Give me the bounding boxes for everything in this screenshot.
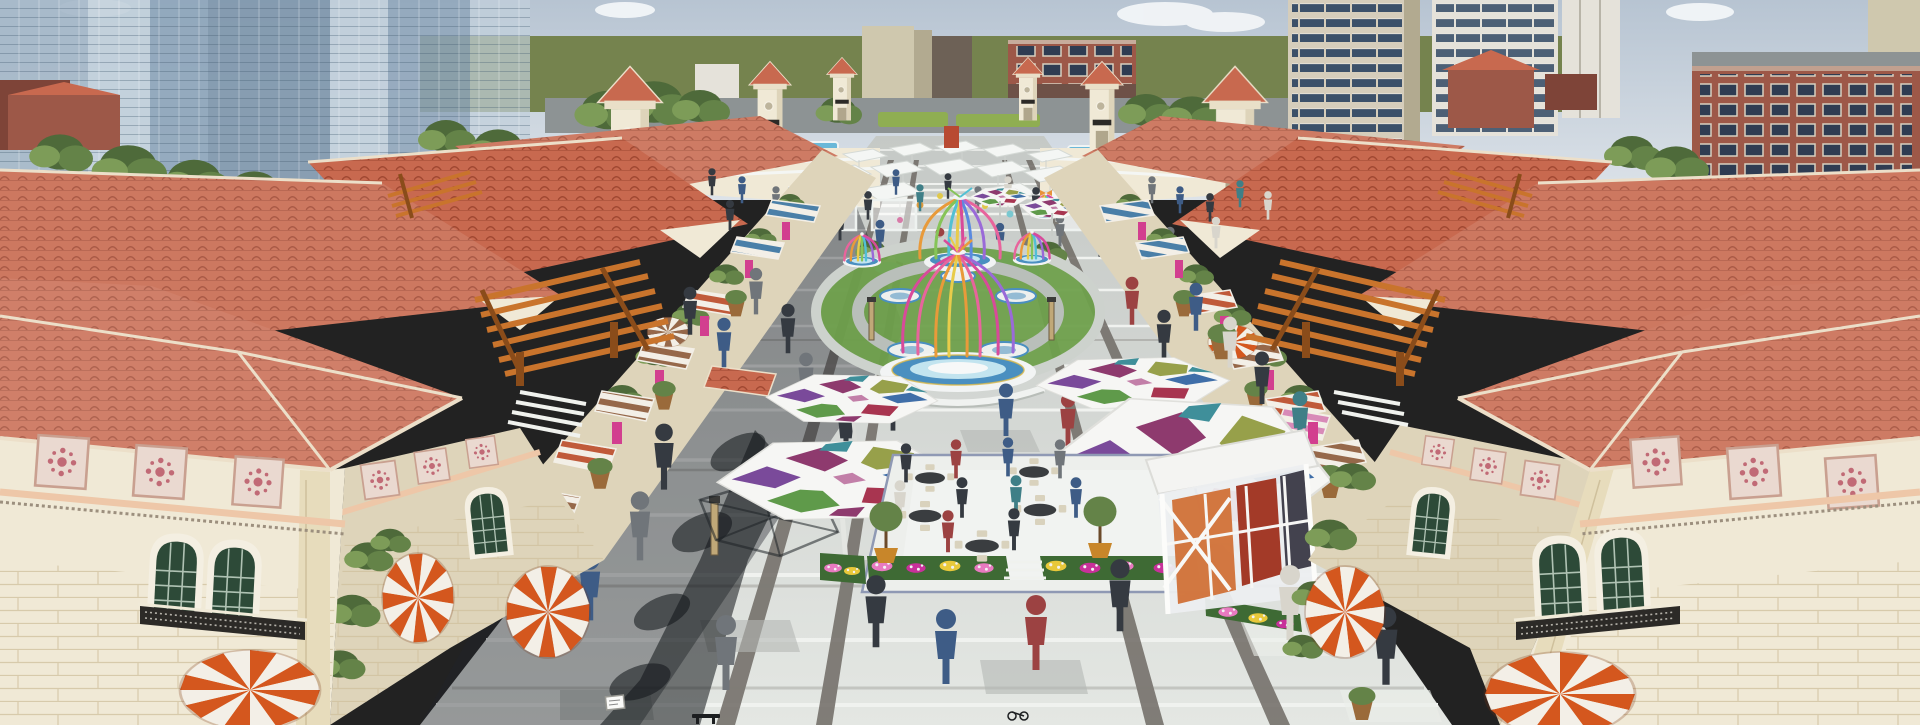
dome-awning-left-main	[180, 650, 320, 725]
architectural-render: Aerial rendering of a Mediterranean-styl…	[0, 0, 1920, 725]
dome-awning-right-main	[1485, 652, 1635, 725]
facade-tile	[1727, 445, 1781, 499]
red-kiosk	[944, 126, 959, 148]
facade-tile	[232, 456, 283, 507]
lawn-strip	[878, 112, 948, 127]
facade-tile	[133, 445, 187, 499]
front-window	[1593, 528, 1651, 617]
facade-tile	[35, 435, 89, 489]
tan-slab-building	[862, 26, 914, 104]
front-window	[1531, 534, 1589, 623]
scene-canvas: Aerial rendering of a Mediterranean-styl…	[0, 0, 1920, 725]
brown-slab-building	[932, 36, 972, 102]
glass-pavilion	[1146, 430, 1318, 614]
facade-tile	[1630, 436, 1681, 487]
